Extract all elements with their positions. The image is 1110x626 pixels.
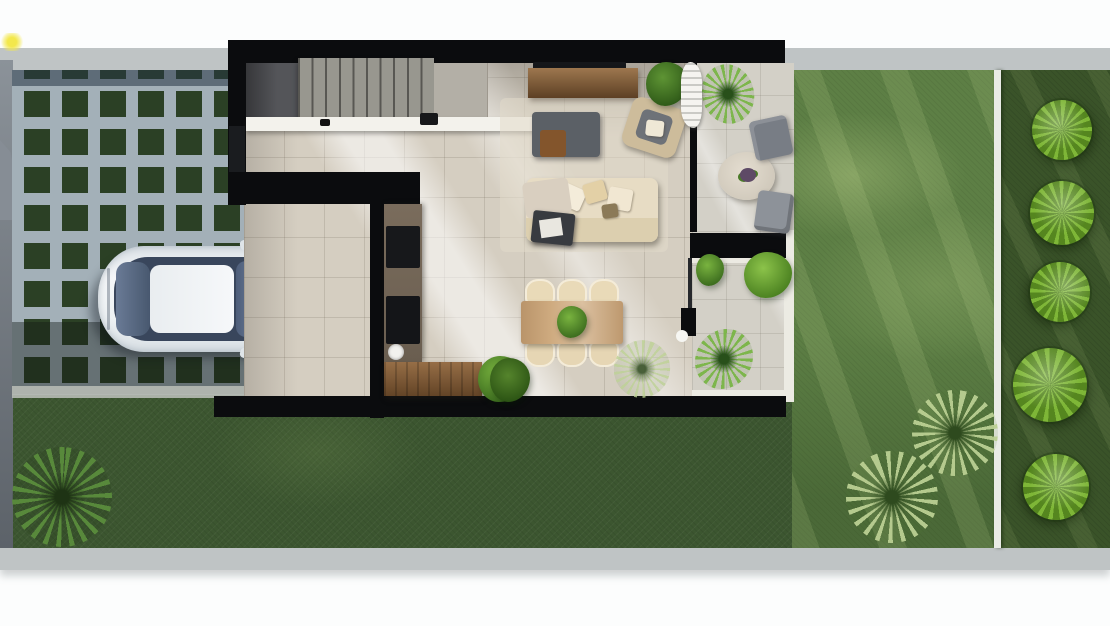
left-wall-window <box>229 126 245 174</box>
stair-side-tiles <box>434 63 488 125</box>
sofa-pillow-2 <box>582 179 609 204</box>
yellow-marker <box>0 33 24 51</box>
carport-partition-wall <box>228 172 420 204</box>
car-roof-panel <box>150 265 234 333</box>
oven <box>386 296 420 344</box>
site-plan-render <box>0 0 1110 626</box>
flower-vase <box>740 168 756 182</box>
cooktop <box>386 226 420 268</box>
patio-chair-upper <box>748 114 793 161</box>
edge-path-line <box>994 70 1001 548</box>
patio-divider-rail <box>688 258 692 310</box>
stair-landing <box>246 63 298 124</box>
rear-sidewalk <box>0 545 1110 570</box>
curtain <box>681 62 702 128</box>
ottoman-cube <box>540 130 566 157</box>
patio-chair-lower <box>753 190 794 235</box>
dining-chair-bottom-1 <box>525 340 555 367</box>
car-trunk-line <box>107 268 110 330</box>
dining-chair-bottom-2 <box>557 340 587 367</box>
stairs <box>298 58 434 122</box>
kitchen-island <box>384 362 482 396</box>
counter-faucet <box>320 119 330 126</box>
kitchen-side-wall <box>370 204 384 418</box>
kitchen-sink <box>388 344 404 360</box>
tv-console <box>528 68 638 98</box>
armchair-pillow <box>645 119 665 137</box>
shrub-tree-1 <box>1032 100 1092 160</box>
magazine-paper <box>539 217 563 238</box>
magazine-rack <box>530 210 575 246</box>
sofa-pillow-dark <box>601 203 619 219</box>
counter-appliance <box>420 113 438 125</box>
car-rear-window <box>116 262 150 336</box>
white-flower-plant <box>676 330 688 342</box>
